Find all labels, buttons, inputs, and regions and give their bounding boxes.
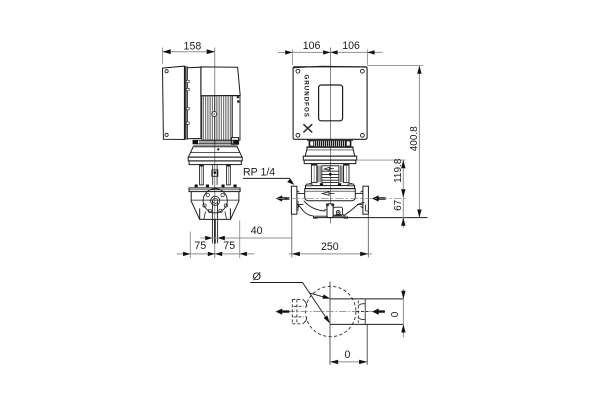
svg-text:106: 106 xyxy=(342,40,360,52)
svg-text:0: 0 xyxy=(345,349,351,361)
svg-text:158: 158 xyxy=(184,40,202,52)
svg-text:67: 67 xyxy=(393,199,404,211)
svg-text:106: 106 xyxy=(303,40,321,52)
svg-text:RP 1/4: RP 1/4 xyxy=(243,166,275,178)
svg-text:0: 0 xyxy=(390,311,401,317)
svg-text:75: 75 xyxy=(223,240,235,252)
svg-text:119.8: 119.8 xyxy=(393,158,404,183)
svg-text:75: 75 xyxy=(194,240,206,252)
svg-text:40: 40 xyxy=(251,225,263,237)
svg-text:250: 250 xyxy=(321,241,339,253)
svg-text:400.8: 400.8 xyxy=(409,126,420,151)
svg-text:GRUNDFOS: GRUNDFOS xyxy=(302,75,309,118)
svg-text:Ø: Ø xyxy=(253,271,262,283)
